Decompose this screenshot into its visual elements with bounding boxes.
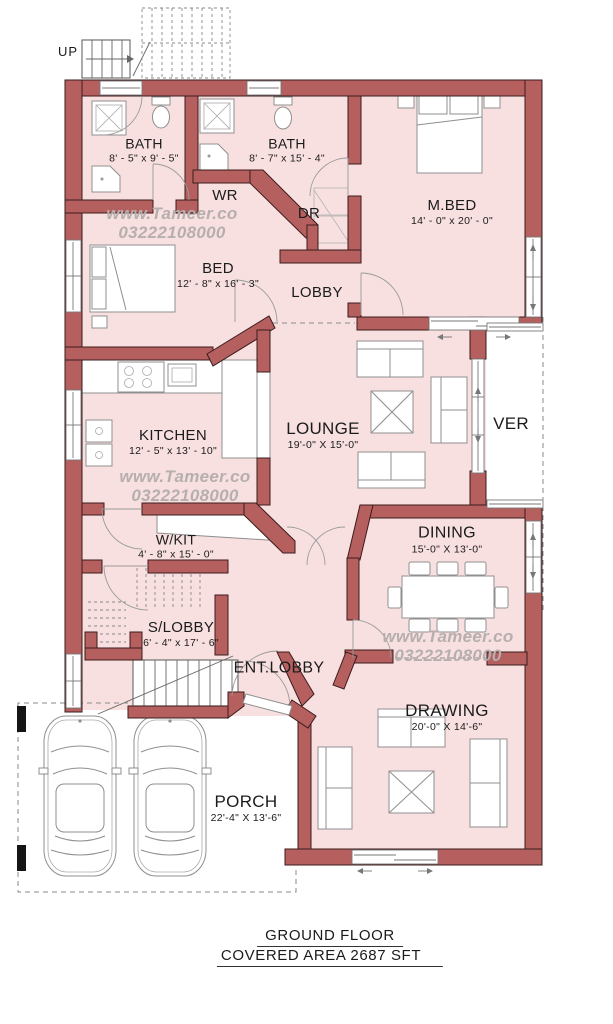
stove-icon (118, 362, 164, 392)
room-label-bath-2: BATH 8' - 7" x 15' - 4" (249, 136, 325, 165)
room-dims: 12' - 8" x 16' - 3" (177, 278, 259, 290)
room-label-wr: WR (212, 187, 238, 205)
gate-post (17, 845, 26, 871)
room-label-dr: DR (298, 205, 320, 223)
watermark-phone: 03222108000 (106, 223, 237, 242)
room-label-mbed: M.BED 14' - 0" x 20' - 0" (411, 197, 493, 227)
watermark-phone: 03222108000 (119, 486, 250, 505)
room-label-drawing: DRAWING 20'-0" X 14'-6" (405, 701, 489, 733)
watermark-site: www.Tameer.co (382, 627, 513, 646)
plan-title: GROUND FLOOR (257, 927, 403, 947)
room-dims: 6' - 4" x 17' - 6" (143, 637, 219, 649)
room-dims: 8' - 7" x 15' - 4" (249, 152, 325, 164)
room-name: DINING (418, 524, 476, 543)
toilet-icon (274, 97, 292, 105)
dining-table-icon (402, 576, 494, 618)
room-label-entlobby: ENT.LOBBY (234, 660, 325, 679)
watermark: www.Tameer.co 03222108000 (106, 204, 237, 242)
stairs-up-label: UP (58, 44, 78, 59)
verandah-floor (486, 317, 543, 505)
room-name: M.BED (427, 197, 476, 215)
room-name: BED (202, 260, 234, 278)
room-label-dining: DINING 15'-0" X 13'-0" (412, 524, 483, 555)
room-name: VER (493, 414, 529, 434)
room-dims: 22'-4" X 13'-6" (211, 812, 282, 824)
gate-post (17, 706, 26, 732)
room-label-lounge: LOUNGE 19'-0" X 15'-0" (286, 419, 360, 451)
watermark-site: www.Tameer.co (106, 204, 237, 223)
watermark-site: www.Tameer.co (119, 467, 250, 486)
room-name: DR (298, 205, 320, 223)
room-dims: 4' - 8" x 15' - 0" (138, 548, 214, 560)
kitchen-counter (222, 360, 258, 458)
room-label-porch: PORCH 22'-4" X 13'-6" (211, 792, 282, 824)
covered-area-label: COVERED AREA 2687 SFT (217, 947, 443, 967)
room-dims: 20'-0" X 14'-6" (412, 721, 483, 733)
watermark: www.Tameer.co 03222108000 (119, 467, 250, 505)
room-label-kitchen: KITCHEN 12' - 5" x 13' - 10" (129, 427, 217, 457)
car-1 (39, 716, 121, 876)
room-name: S/LOBBY (148, 619, 214, 637)
room-label-ver: VER (493, 414, 529, 434)
room-name: PORCH (215, 792, 278, 812)
room-dims: 12' - 5" x 13' - 10" (129, 445, 217, 457)
watermark: www.Tameer.co 03222108000 (382, 627, 513, 665)
external-staircase-top (82, 8, 230, 78)
room-name: KITCHEN (139, 427, 207, 445)
room-name: LOBBY (291, 284, 343, 302)
room-name: ENT.LOBBY (234, 660, 325, 679)
watermark-phone: 03222108000 (382, 646, 513, 665)
room-dims: 19'-0" X 15'-0" (288, 439, 359, 451)
room-name: BATH (125, 136, 163, 153)
room-dims: 8' - 5" x 9' - 5" (109, 152, 179, 164)
room-dims: 14' - 0" x 20' - 0" (411, 215, 493, 227)
room-label-bath-1: BATH 8' - 5" x 9' - 5" (109, 136, 179, 165)
room-label-slobby: S/LOBBY 6' - 4" x 17' - 6" (143, 619, 219, 649)
room-name: BATH (268, 136, 306, 153)
room-name: WR (212, 187, 238, 205)
toilet-icon (152, 97, 170, 105)
room-dims: 15'-0" X 13'-0" (412, 543, 483, 555)
car-2 (129, 716, 211, 876)
room-label-wkit: W/KIT 4' - 8" x 15' - 0" (138, 532, 214, 561)
room-label-bed: BED 12' - 8" x 16' - 3" (177, 260, 259, 290)
floor-plan-canvas: UP BATH 8' - 5" x 9' - 5" BATH 8' - 7" x… (0, 0, 613, 1024)
room-name: LOUNGE (286, 419, 360, 439)
room-name: DRAWING (405, 701, 489, 721)
room-name: W/KIT (156, 532, 196, 549)
room-label-lobby: LOBBY (291, 284, 343, 302)
